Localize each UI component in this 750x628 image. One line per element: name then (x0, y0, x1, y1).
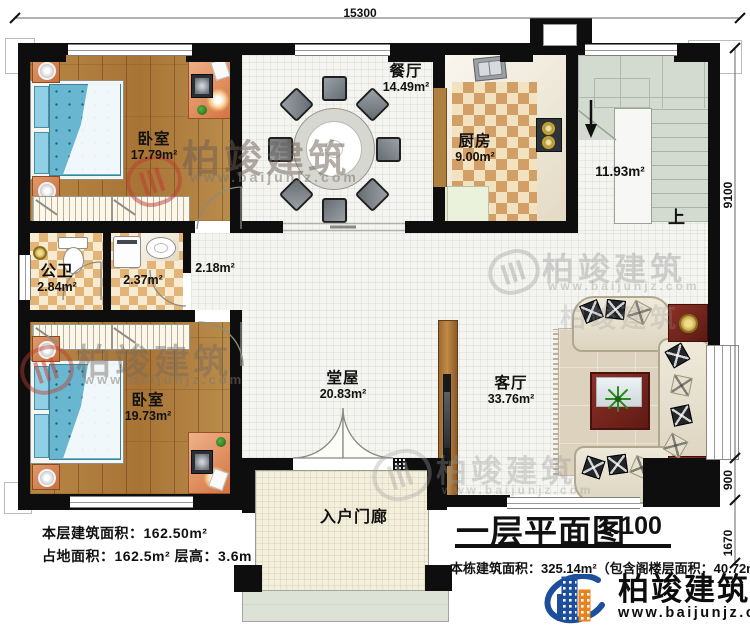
brand-name: 柏竣建筑 (618, 574, 750, 605)
stair-up-text: 上 (662, 208, 692, 227)
room-name: 卧室 (118, 131, 190, 148)
double-entry-door (293, 408, 393, 458)
room-name: 餐厅 (370, 63, 442, 80)
dimension-right-main: 9100 (721, 165, 735, 225)
room-name: 堂屋 (307, 370, 379, 387)
room-area: 14.49m² (370, 80, 442, 94)
stair-direction-label: 上 (662, 208, 692, 227)
room-area: 2.18m² (180, 261, 250, 275)
room-label-laundry: 2.37m² (108, 273, 178, 287)
room-area: 19.73m² (112, 409, 184, 423)
room-area: 20.83m² (307, 387, 379, 401)
room-area: 33.76m² (475, 392, 547, 406)
room-area: 2.37m² (108, 273, 178, 287)
room-name: 厨房 (439, 133, 511, 150)
room-name: 公卫 (20, 263, 94, 280)
room-label-hall: 堂屋 20.83m² (307, 370, 379, 401)
room-area: 17.79m² (118, 148, 190, 162)
footprint-stat: 占地面积：162.5m² 层高：3.6m (42, 546, 252, 566)
stair-marks (578, 100, 616, 140)
room-name: 卧室 (112, 392, 184, 409)
room-area: 9.00m² (439, 150, 511, 164)
room-label-living: 客厅 33.76m² (475, 375, 547, 406)
brand-logo-icon (532, 574, 612, 626)
room-label-porch: 入户门廊 (294, 509, 414, 527)
room-label-kitchen: 厨房 9.00m² (439, 133, 511, 164)
room-area: 2.84m² (20, 280, 94, 294)
floor-area-stat: 本层建筑面积：162.50m² (42, 523, 207, 543)
room-label-bedroom1: 卧室 17.79m² (118, 131, 190, 162)
room-label-bedroom2: 卧室 19.73m² (112, 392, 184, 423)
room-name: 客厅 (475, 375, 547, 392)
plan-scale: 1:100 (598, 512, 662, 541)
brand-text-group: 柏竣建筑 www.baijunjz.com (618, 574, 750, 621)
room-label-corridor: 2.18m² (180, 261, 250, 275)
room-name: 入户门廊 (294, 509, 414, 527)
floor-plan-canvas: 卧室 17.79m² 餐厅 14.49m² 厨房 9.00m² 11.93m² … (0, 0, 750, 628)
room-label-stairwell: 11.93m² (585, 164, 655, 179)
room-area: 11.93m² (585, 164, 655, 179)
brand-url: www.baijunjz.com (618, 605, 750, 621)
title-underline (455, 544, 671, 548)
brand-logo: 柏竣建筑 www.baijunjz.com (532, 574, 750, 626)
dimension-top: 15300 (330, 6, 390, 20)
dining-opening (283, 224, 405, 231)
room-label-bathroom: 公卫 2.84m² (20, 263, 94, 294)
dimension-right-offset: 900 (721, 458, 735, 502)
room-label-dining: 餐厅 14.49m² (370, 63, 442, 94)
